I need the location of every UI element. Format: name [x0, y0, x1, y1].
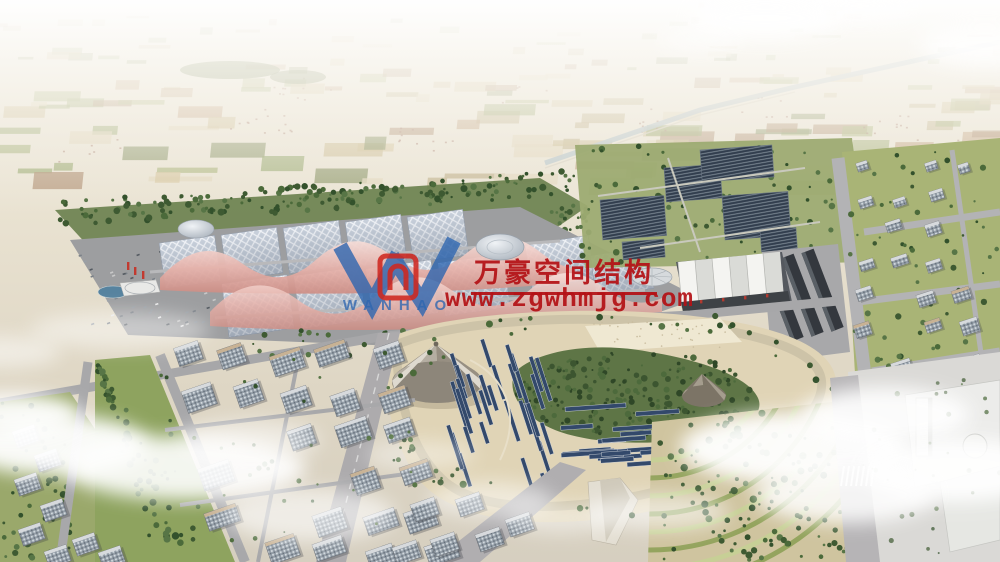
rendered-landscape	[0, 0, 1000, 562]
aerial-rendering: WANHAO 万豪空间结构 www.zgwhmjg.com	[0, 0, 1000, 562]
